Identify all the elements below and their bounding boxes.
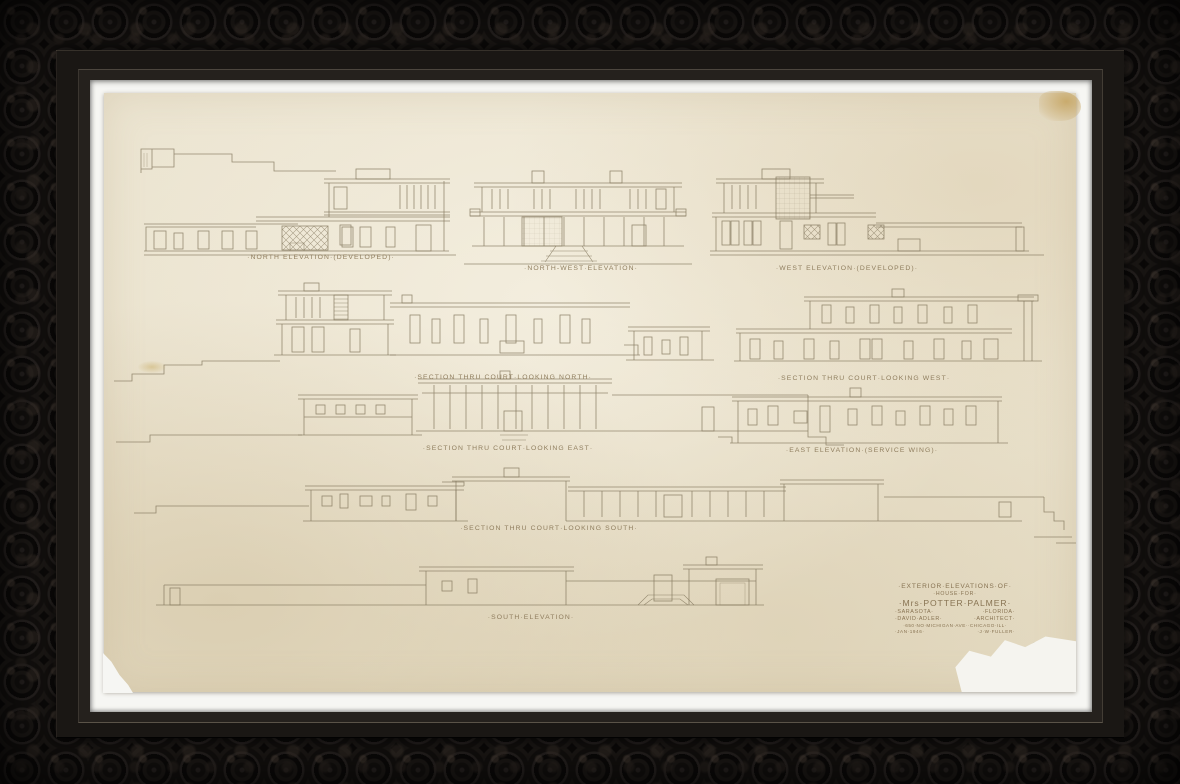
title-block-date: ·JAN·1946· bbox=[895, 629, 925, 634]
title-block-architect-name: ·DAVID·ADLER· bbox=[895, 616, 942, 622]
east-elevation-service-wing-drawing bbox=[718, 388, 1008, 443]
section-looking-north-drawing bbox=[114, 283, 714, 381]
caption-northwest-elevation: ·NORTH-WEST·ELEVATION· bbox=[524, 265, 638, 272]
north-elevation-drawing bbox=[144, 169, 456, 255]
drawing-sheet: ·NORTH ELEVATION·(DEVELOPED)· ·NORTH-WES… bbox=[104, 93, 1076, 692]
section-looking-west-drawing bbox=[734, 289, 1042, 361]
caption-section-east: ·SECTION THRU COURT·LOOKING EAST· bbox=[423, 445, 594, 452]
title-block: ·EXTERIOR·ELEVATIONS·OF· ·HOUSE·FOR· ·Mr… bbox=[889, 583, 1021, 634]
title-block-drafter: ·J·W·FULLER· bbox=[977, 629, 1015, 634]
caption-south-elevation: ·SOUTH·ELEVATION· bbox=[488, 614, 574, 621]
title-block-project-line: ·EXTERIOR·ELEVATIONS·OF· bbox=[889, 583, 1021, 590]
section-looking-east-drawing bbox=[116, 371, 844, 445]
white-mat: ·NORTH ELEVATION·(DEVELOPED)· ·NORTH-WES… bbox=[90, 80, 1092, 712]
northwest-elevation-drawing bbox=[464, 171, 692, 264]
title-block-client-name: ·Mrs·POTTER·PALMER· bbox=[889, 598, 1021, 608]
sheet-number-badge: 8 bbox=[1030, 642, 1043, 655]
title-block-date-drafter: ·JAN·1946· ·J·W·FULLER· bbox=[889, 629, 1021, 634]
caption-north-elevation: ·NORTH ELEVATION·(DEVELOPED)· bbox=[247, 254, 395, 261]
framed-artwork-photo: ·NORTH ELEVATION·(DEVELOPED)· ·NORTH-WES… bbox=[0, 0, 1180, 784]
caption-section-north: ·SECTION THRU COURT·LOOKING NORTH· bbox=[414, 374, 592, 381]
title-block-architect-title: ·ARCHITECT· bbox=[974, 616, 1015, 622]
title-block-architect: ·DAVID·ADLER· ·ARCHITECT· bbox=[889, 616, 1021, 622]
title-block-state: ·FLORIDA· bbox=[983, 609, 1015, 615]
south-elevation-drawing bbox=[156, 557, 764, 605]
caption-west-elevation: ·WEST ELEVATION·(DEVELOPED)· bbox=[776, 265, 918, 272]
title-block-location: ·SARASOTA· ·FLORIDA· bbox=[889, 609, 1021, 615]
roof-plan-fragment-drawing bbox=[141, 149, 336, 173]
title-block-house-for: ·HOUSE·FOR· bbox=[889, 591, 1021, 597]
title-block-city: ·SARASOTA· bbox=[895, 609, 934, 615]
title-block-address: ·650·NO·MICHIGAN·AVE··CHICAGO·ILL· bbox=[889, 623, 1021, 628]
caption-section-south: ·SECTION THRU COURT·LOOKING SOUTH· bbox=[460, 525, 638, 532]
caption-section-west: ·SECTION THRU COURT·LOOKING WEST· bbox=[778, 375, 950, 382]
west-elevation-drawing bbox=[710, 169, 1044, 255]
caption-east-service-wing: ·EAST ELEVATION·(SERVICE WING)· bbox=[786, 447, 938, 454]
